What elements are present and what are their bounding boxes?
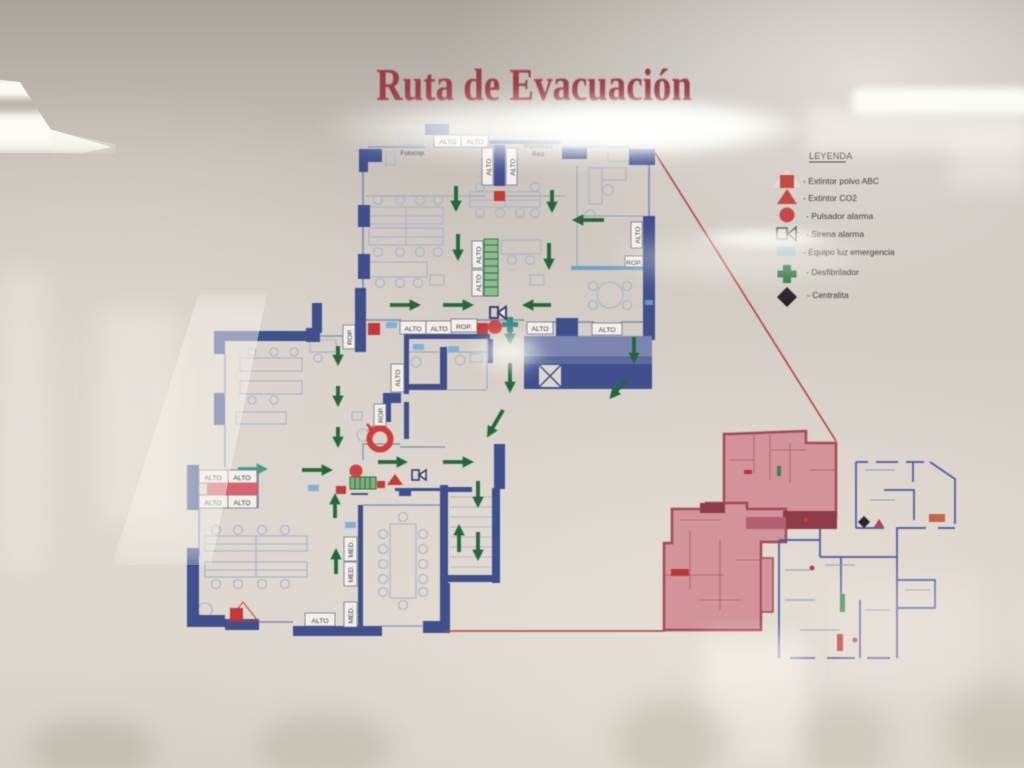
svg-text:- Equipo luz emergencia: - Equipo luz emergencia: [803, 247, 895, 257]
svg-text:- Extintor polvo ABC: - Extintor polvo ABC: [803, 176, 879, 186]
svg-text:- Pulsador alarma: - Pulsador alarma: [806, 211, 873, 221]
svg-text:- Centralita: - Centralita: [807, 290, 849, 300]
svg-text:ALTO: ALTO: [466, 139, 483, 146]
svg-text:Impresora: Impresora: [523, 143, 553, 150]
svg-text:Fotocop.: Fotocop.: [400, 150, 425, 157]
svg-text:ALTO: ALTO: [598, 327, 615, 334]
svg-text:MED.: MED.: [348, 540, 355, 557]
svg-text:ALTO: ALTO: [476, 246, 483, 263]
svg-text:ALTO: ALTO: [635, 226, 642, 243]
svg-text:Red: Red: [532, 151, 544, 158]
svg-text:MED.: MED.: [348, 606, 355, 623]
svg-text:ALTO: ALTO: [233, 500, 250, 507]
svg-text:ROP.: ROP.: [378, 407, 385, 423]
svg-text:ROP.: ROP.: [626, 260, 642, 267]
svg-text:MED.: MED.: [348, 565, 355, 582]
svg-text:ALTO: ALTO: [395, 369, 402, 386]
svg-text:ALTO: ALTO: [233, 475, 250, 482]
svg-text:ALTO: ALTO: [311, 618, 328, 625]
svg-text:ALTO: ALTO: [204, 475, 221, 482]
svg-text:ALTO: ALTO: [531, 326, 548, 333]
svg-text:ALTO: ALTO: [510, 158, 517, 175]
svg-text:- Sirena alarma: - Sirena alarma: [806, 229, 864, 239]
svg-text:ALTO: ALTO: [204, 500, 221, 507]
svg-text:ALTO: ALTO: [430, 326, 447, 333]
svg-text:ALTO: ALTO: [476, 274, 483, 291]
svg-text:ROP.: ROP.: [347, 329, 354, 345]
svg-text:ALTO: ALTO: [404, 326, 421, 333]
svg-text:ALTO: ALTO: [486, 158, 493, 175]
svg-text:- Extintor CO2: - Extintor CO2: [803, 193, 857, 203]
svg-text:ROP.: ROP.: [456, 324, 472, 331]
svg-text:LEYENDA: LEYENDA: [809, 151, 852, 161]
svg-text:- Desfibrilador: - Desfibrilador: [806, 267, 859, 277]
svg-text:ALTO: ALTO: [439, 139, 456, 146]
